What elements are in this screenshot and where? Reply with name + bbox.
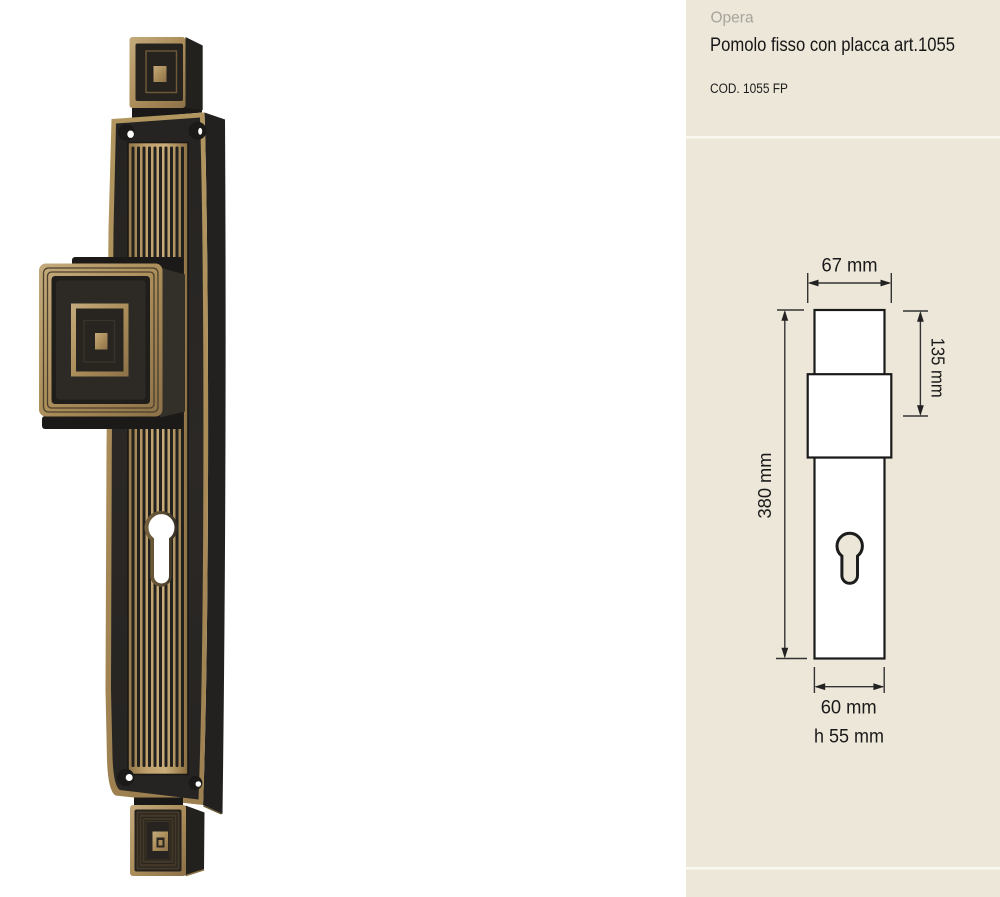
svg-text:h 55 mm: h 55 mm (814, 727, 884, 748)
svg-text:Opera: Opera (711, 10, 754, 27)
svg-text:135 mm: 135 mm (928, 338, 948, 398)
svg-text:60 mm: 60 mm (821, 698, 877, 719)
svg-text:67 mm: 67 mm (822, 256, 878, 277)
svg-text:380 mm: 380 mm (755, 453, 775, 519)
svg-text:COD. 1055 FP: COD. 1055 FP (710, 81, 788, 96)
svg-text:Pomolo fisso con placca art.10: Pomolo fisso con placca art.1055 (710, 35, 955, 56)
